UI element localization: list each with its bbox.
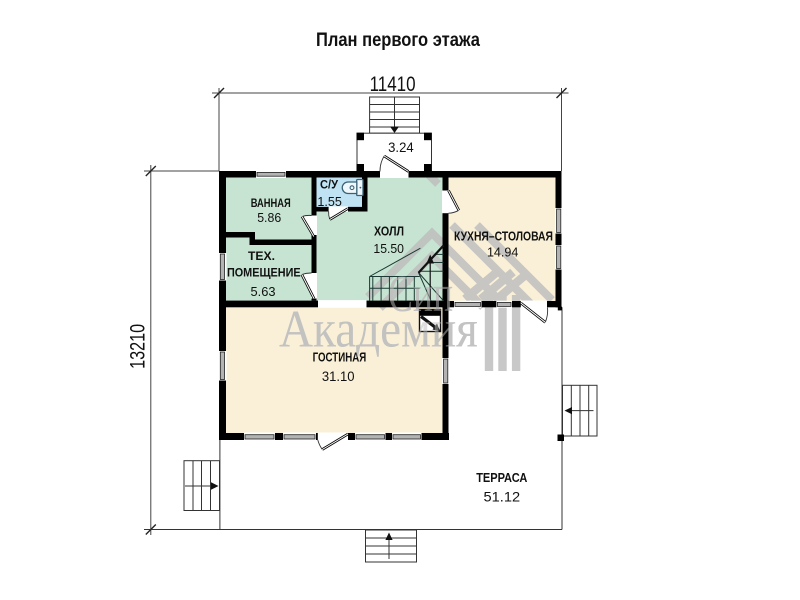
svg-text:План первого этажа: План первого этажа: [316, 29, 480, 51]
svg-text:51.12: 51.12: [484, 490, 521, 505]
svg-text:ТЕРРАСА: ТЕРРАСА: [476, 470, 528, 485]
svg-text:ТЕХ.: ТЕХ.: [248, 249, 275, 263]
svg-text:ПОМЕЩЕНИЕ: ПОМЕЩЕНИЕ: [227, 265, 301, 279]
svg-text:3.24: 3.24: [388, 140, 414, 155]
svg-text:ХОЛЛ: ХОЛЛ: [374, 224, 404, 238]
svg-text:5.63: 5.63: [251, 285, 276, 299]
svg-text:ВАННАЯ: ВАННАЯ: [251, 196, 291, 210]
svg-text:1.55: 1.55: [317, 195, 342, 209]
svg-text:КУХНЯ–СТОЛОВАЯ: КУХНЯ–СТОЛОВАЯ: [454, 228, 553, 243]
svg-text:15.50: 15.50: [373, 241, 404, 256]
svg-text:31.10: 31.10: [322, 369, 355, 384]
svg-text:5.86: 5.86: [257, 211, 281, 225]
svg-text:14.94: 14.94: [487, 245, 519, 260]
svg-text:11410: 11410: [370, 72, 416, 96]
svg-text:С/У: С/У: [320, 178, 338, 192]
svg-text:13210: 13210: [126, 324, 150, 369]
